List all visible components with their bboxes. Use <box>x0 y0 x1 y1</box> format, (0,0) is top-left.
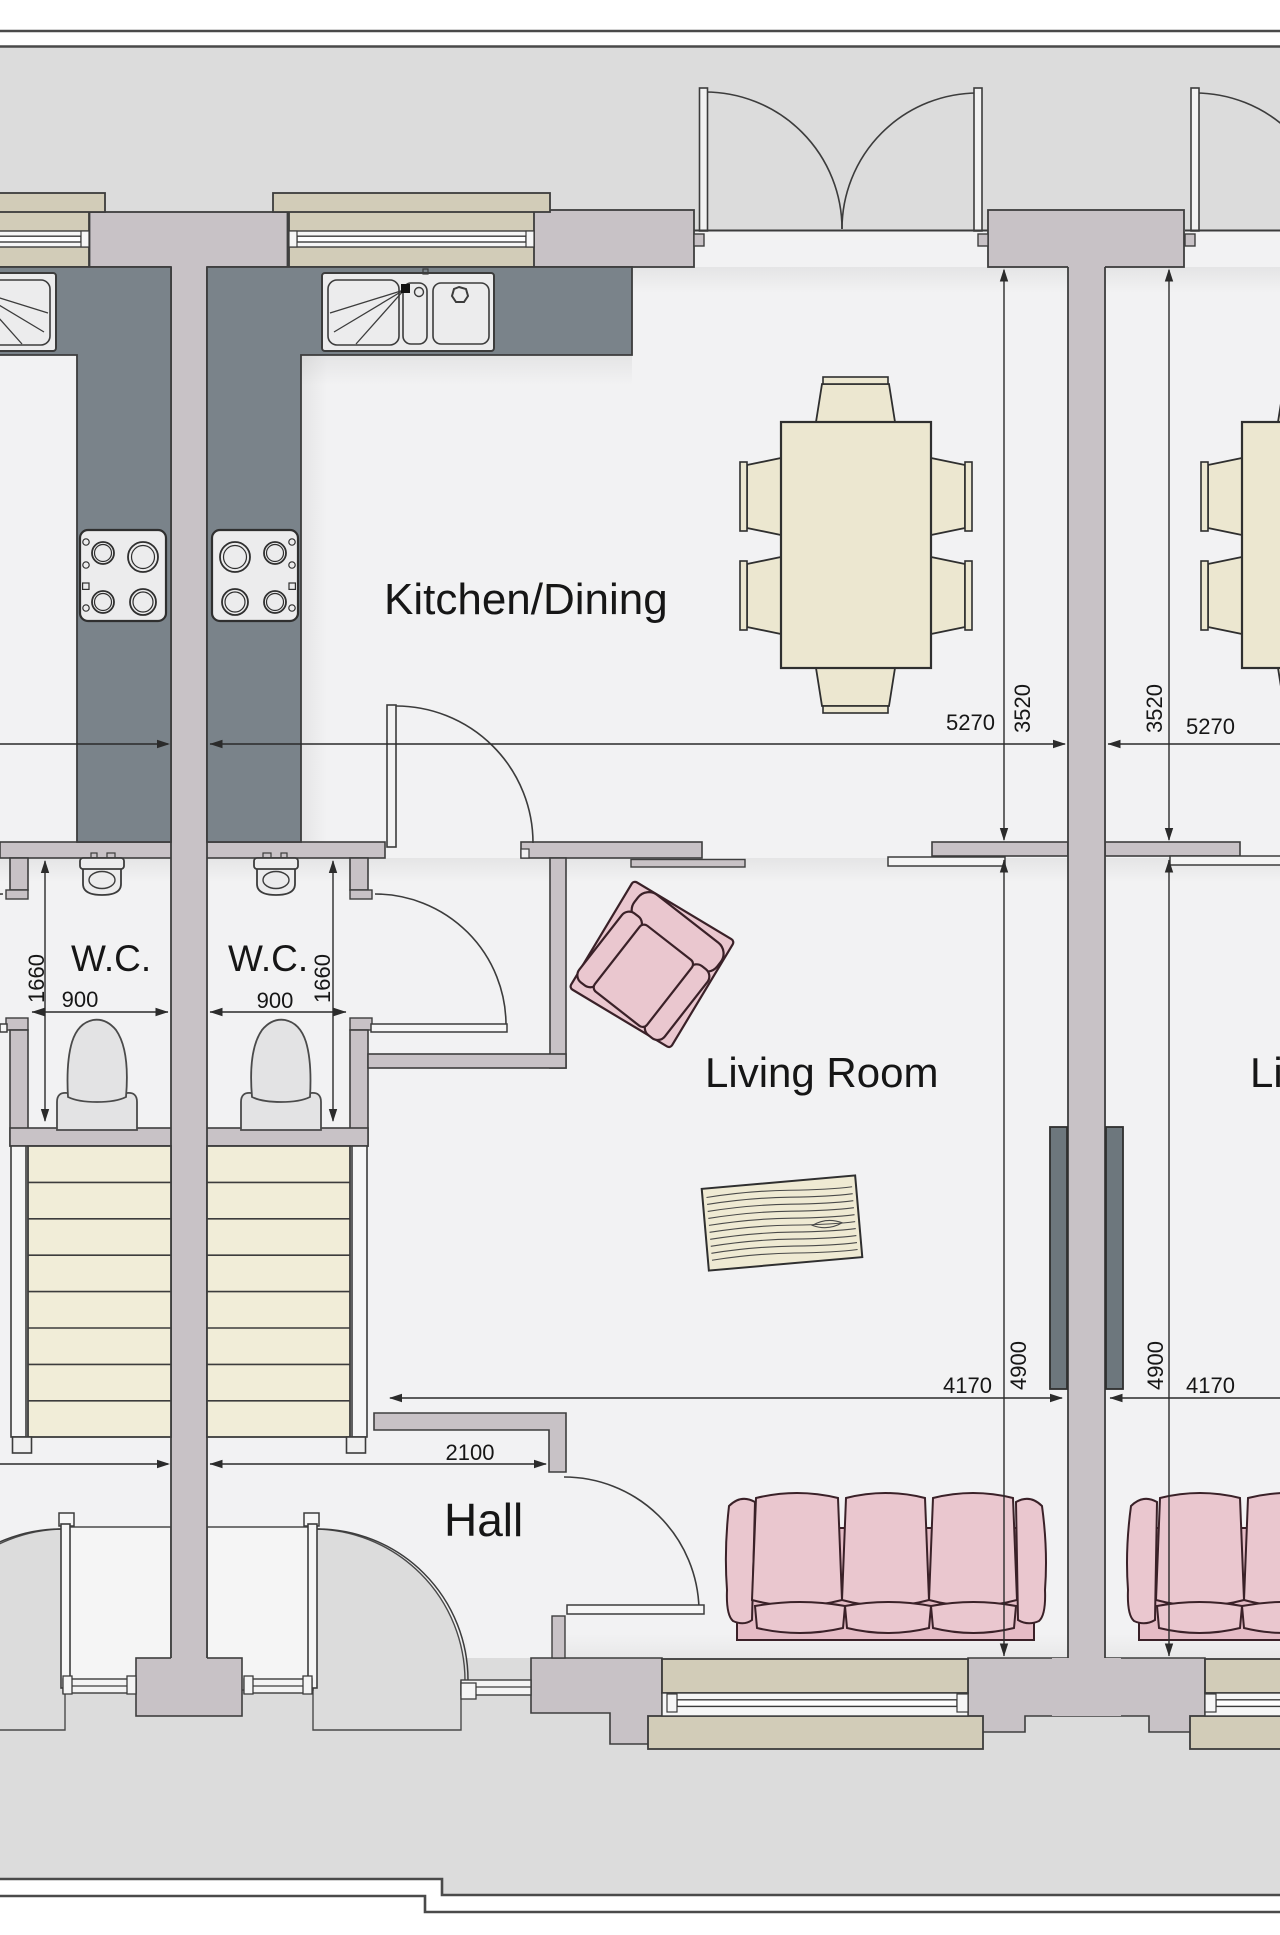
svg-text:4900: 4900 <box>1143 1341 1168 1390</box>
svg-text:W.C.: W.C. <box>71 938 151 979</box>
svg-text:1660: 1660 <box>24 954 49 1003</box>
svg-text:Living Room: Living Room <box>705 1049 938 1096</box>
svg-text:Kitchen/Dining: Kitchen/Dining <box>384 575 668 624</box>
svg-text:3520: 3520 <box>1142 684 1167 733</box>
svg-text:900: 900 <box>62 987 99 1012</box>
svg-text:900: 900 <box>257 988 294 1013</box>
svg-text:4170: 4170 <box>943 1373 992 1398</box>
svg-text:Hall: Hall <box>444 1494 523 1546</box>
svg-text:1660: 1660 <box>310 954 335 1003</box>
svg-text:5270: 5270 <box>946 710 995 735</box>
svg-text:5270: 5270 <box>1186 714 1235 739</box>
svg-text:4170: 4170 <box>1186 1373 1235 1398</box>
svg-text:2100: 2100 <box>446 1440 495 1465</box>
svg-text:3520: 3520 <box>1010 684 1035 733</box>
svg-text:4900: 4900 <box>1006 1341 1031 1390</box>
svg-text:Living Room: Living Room <box>1250 1049 1280 1096</box>
svg-text:W.C.: W.C. <box>228 938 308 979</box>
